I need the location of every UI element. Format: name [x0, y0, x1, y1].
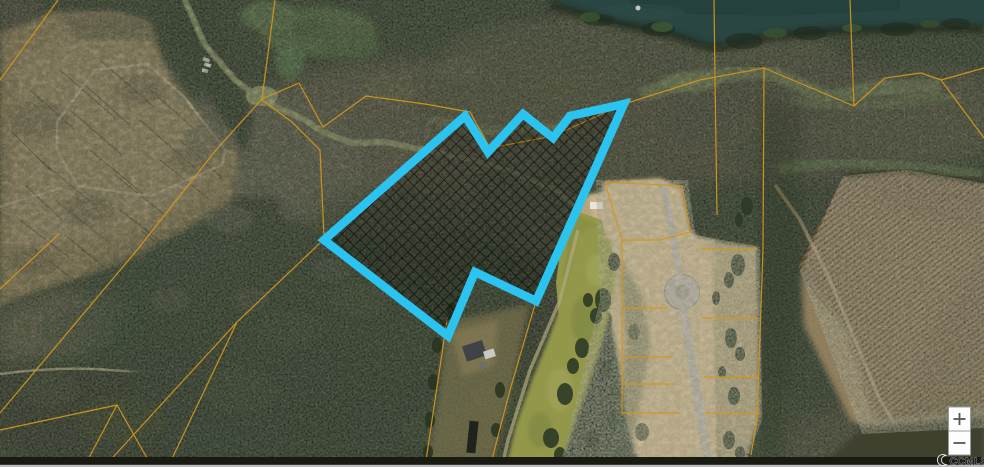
- svg-text:CCMLS: CCMLS: [950, 456, 984, 467]
